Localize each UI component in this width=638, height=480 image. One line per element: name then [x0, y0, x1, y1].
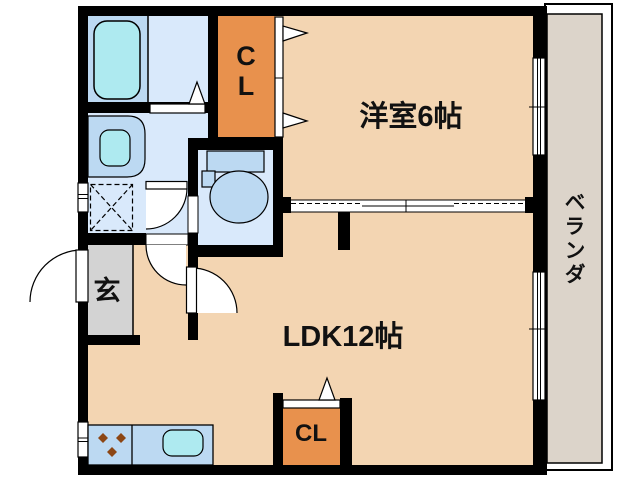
wall-partition-anchor-left — [273, 197, 291, 213]
wall-closet-lower-right — [340, 398, 352, 465]
wall-washroom-bottom — [78, 233, 146, 245]
toilet-door — [188, 196, 198, 233]
wall-partition-anchor-right — [525, 197, 537, 213]
wall-toilet-top — [188, 138, 283, 150]
bathtub — [94, 21, 140, 99]
room-label-closet-upper: CL — [231, 41, 261, 101]
room-label-closet-lower: CL — [286, 420, 336, 448]
floor-plan-drawing — [0, 0, 638, 480]
room-label-veranda: ベランダ — [560, 191, 588, 331]
room-label-ldk: LDK12帖 — [253, 313, 433, 355]
wall-bottom — [78, 465, 547, 475]
wall-toilet-bottom — [188, 245, 283, 257]
room-label-western-room: 洋室6帖 — [321, 93, 501, 135]
wall-partition-stub — [338, 212, 350, 250]
wall-closet-lower-left — [273, 393, 283, 465]
floor-plan: 洋室6帖 LDK12帖 玄 CL CL ベランダ — [0, 0, 638, 480]
washbasin — [88, 116, 145, 177]
sliding-partition — [283, 200, 533, 212]
kitchen-counter — [88, 425, 213, 465]
kitchen-sink — [163, 430, 203, 456]
window-kitchen — [78, 422, 88, 457]
wall-genkan-bottom — [78, 335, 140, 345]
entrance-door — [30, 250, 88, 302]
wall-bath-closet-divider — [208, 16, 218, 150]
room-label-entrance: 玄 — [92, 269, 122, 308]
wall-top — [78, 6, 547, 16]
window-washroom — [78, 183, 88, 212]
